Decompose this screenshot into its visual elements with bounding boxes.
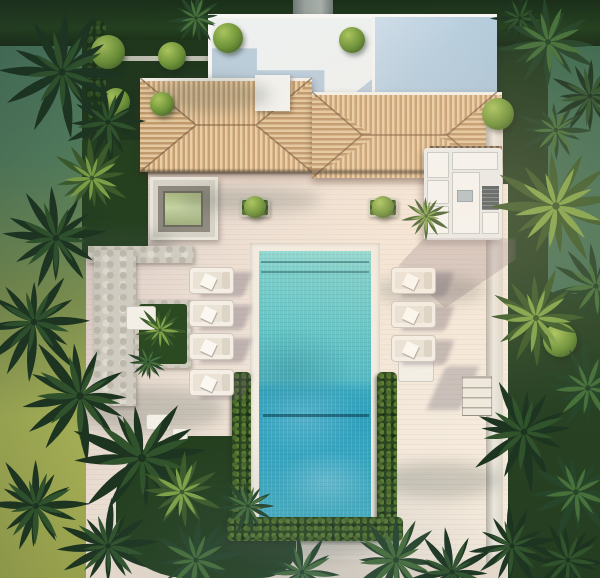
chaise-lounge	[189, 300, 234, 327]
palm-crown	[194, 16, 197, 19]
palm-crown	[33, 503, 39, 509]
palm-crown	[300, 570, 305, 575]
palm-crown	[509, 543, 514, 548]
chaise-backrest	[222, 305, 230, 322]
shrub-ball	[372, 196, 394, 218]
chaise-lounge	[391, 335, 436, 362]
palm-crown	[449, 569, 454, 574]
aerial-villa-scene	[0, 0, 600, 578]
chaise-body	[391, 267, 436, 294]
palm-crown	[393, 557, 399, 563]
chaise-lounge	[189, 333, 234, 360]
palm-crown	[147, 361, 150, 364]
chaise-backrest	[424, 306, 432, 323]
palm-crown	[593, 283, 598, 288]
palm-crown	[58, 68, 65, 75]
chaise-backrest	[222, 272, 230, 289]
palm-tree	[152, 516, 240, 578]
kitchen-counter	[452, 172, 480, 234]
pool-ledge-line	[261, 271, 369, 273]
palm-crown	[552, 202, 559, 209]
chaise-backrest	[222, 374, 230, 391]
pool-ledge-line	[261, 261, 369, 263]
chaise-body	[391, 301, 436, 328]
palm-crown	[90, 176, 95, 181]
shrub-ball	[482, 98, 514, 130]
chaise-backrest	[222, 338, 230, 355]
palm-crown	[533, 315, 539, 321]
palm-crown	[585, 385, 591, 391]
kitchen-counter	[452, 152, 498, 170]
chaise-lounge	[189, 267, 234, 294]
chaise-body	[189, 267, 234, 294]
pool-divider-line	[263, 414, 369, 417]
palm-crown	[193, 557, 198, 562]
shrub-ball	[339, 27, 365, 53]
palm-tree	[126, 340, 170, 384]
palm-crown	[31, 319, 38, 326]
palm-crown	[566, 558, 571, 563]
palm-tree	[168, 0, 224, 46]
palm-crown	[424, 214, 427, 217]
kitchen-sink	[457, 190, 473, 202]
chaise-body	[391, 335, 436, 362]
palm-crown	[158, 328, 161, 331]
kitchen-cabinet	[427, 152, 449, 178]
shrub-ball	[244, 196, 266, 218]
palm-crown	[53, 235, 59, 241]
palm-tree	[400, 190, 452, 242]
pool-hedge	[377, 372, 397, 525]
palm-tree	[262, 532, 342, 578]
palm-crown	[573, 489, 579, 495]
palm-crown	[105, 119, 110, 124]
chaise-lounge	[391, 301, 436, 328]
chaise-body	[189, 300, 234, 327]
palm-crown	[105, 543, 111, 549]
palm-crown	[545, 39, 551, 45]
palm-crown	[521, 429, 528, 436]
palm-tree	[528, 520, 600, 578]
shrub-ball	[150, 92, 174, 116]
chaise-body	[189, 333, 234, 360]
palm-crown	[554, 128, 558, 132]
palm-crown	[246, 504, 250, 508]
chaise-backrest	[424, 340, 432, 357]
chaise-lounge	[391, 267, 436, 294]
shrub-ball	[158, 42, 186, 70]
palm-crown	[180, 490, 185, 495]
chaise-backrest	[424, 272, 432, 289]
